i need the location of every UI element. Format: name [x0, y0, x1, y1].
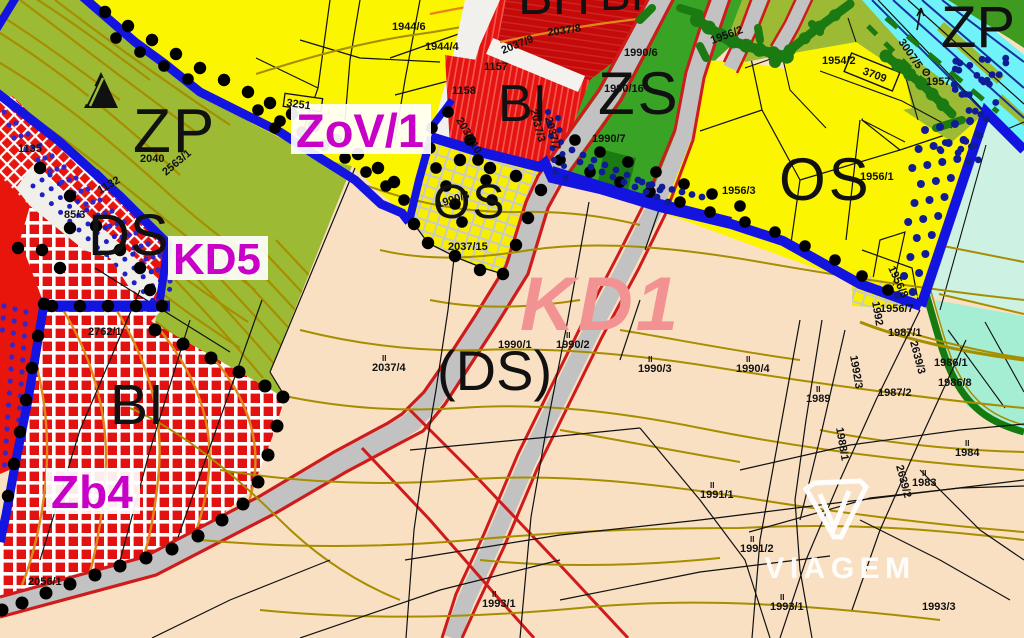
svg-text:1944/6: 1944/6	[392, 21, 426, 33]
svg-text:1986/8: 1986/8	[938, 377, 972, 389]
svg-text:(DS): (DS)	[437, 339, 552, 402]
svg-text:1993/1: 1993/1	[482, 598, 516, 610]
svg-text:1990/4: 1990/4	[736, 363, 771, 375]
svg-text:BI: BI	[600, 0, 643, 20]
svg-text:ZP: ZP	[941, 0, 1015, 60]
svg-text:1956/3: 1956/3	[722, 185, 756, 197]
svg-text:1986/1: 1986/1	[934, 357, 968, 369]
svg-text:1993/3: 1993/3	[922, 601, 956, 613]
svg-text:2037/15: 2037/15	[448, 241, 488, 253]
svg-text:1990/16: 1990/16	[604, 83, 644, 95]
svg-text:1135: 1135	[18, 143, 42, 155]
svg-text:2056/1: 2056/1	[28, 576, 62, 588]
svg-text:II: II	[965, 439, 969, 448]
svg-text:KD5: KD5	[173, 235, 261, 284]
svg-text:KD1: KD1	[520, 262, 681, 347]
svg-text:2762/1: 2762/1	[88, 326, 122, 338]
svg-text:1987/1: 1987/1	[888, 327, 922, 339]
svg-text:II: II	[492, 590, 496, 599]
svg-text:VIAGEM: VIAGEM	[764, 552, 915, 585]
svg-text:1944/4: 1944/4	[425, 41, 460, 53]
svg-text:1984: 1984	[955, 447, 980, 459]
svg-text:1158: 1158	[452, 85, 476, 97]
svg-text:1989: 1989	[806, 393, 830, 405]
svg-text:1990/3: 1990/3	[638, 363, 672, 375]
svg-text:1956/7: 1956/7	[880, 303, 914, 315]
svg-text:1990/6: 1990/6	[624, 47, 658, 59]
svg-text:BI: BI	[110, 373, 164, 437]
svg-text:ZoV/1: ZoV/1	[296, 104, 424, 157]
svg-text:II: II	[566, 331, 570, 340]
svg-text:1990/1: 1990/1	[498, 339, 532, 351]
svg-text:II: II	[780, 593, 784, 602]
svg-text:II: II	[750, 535, 754, 544]
svg-text:II: II	[746, 355, 750, 364]
svg-text:II: II	[922, 469, 926, 478]
svg-text:II: II	[710, 481, 714, 490]
svg-text:DS: DS	[88, 203, 169, 268]
svg-text:85/3: 85/3	[64, 209, 85, 221]
svg-text:2040: 2040	[140, 153, 164, 165]
svg-text:1990/2: 1990/2	[556, 339, 590, 351]
svg-text:II: II	[648, 355, 652, 364]
svg-text:Θ: Θ	[922, 67, 931, 79]
svg-text:OS: OS	[779, 146, 872, 213]
svg-text:II: II	[816, 385, 820, 394]
svg-text:1983: 1983	[912, 477, 936, 489]
svg-text:1993/1: 1993/1	[770, 601, 804, 613]
svg-text:Zb4: Zb4	[51, 466, 133, 518]
svg-text:1954/2: 1954/2	[822, 55, 856, 67]
svg-text:1987/2: 1987/2	[878, 387, 912, 399]
svg-text:1990/7: 1990/7	[592, 133, 626, 145]
svg-text:1991/1: 1991/1	[700, 489, 734, 501]
svg-text:1157: 1157	[484, 61, 508, 73]
svg-text:1956/1: 1956/1	[860, 171, 894, 183]
svg-text:II: II	[382, 354, 386, 363]
svg-text:2037/4: 2037/4	[372, 362, 407, 374]
